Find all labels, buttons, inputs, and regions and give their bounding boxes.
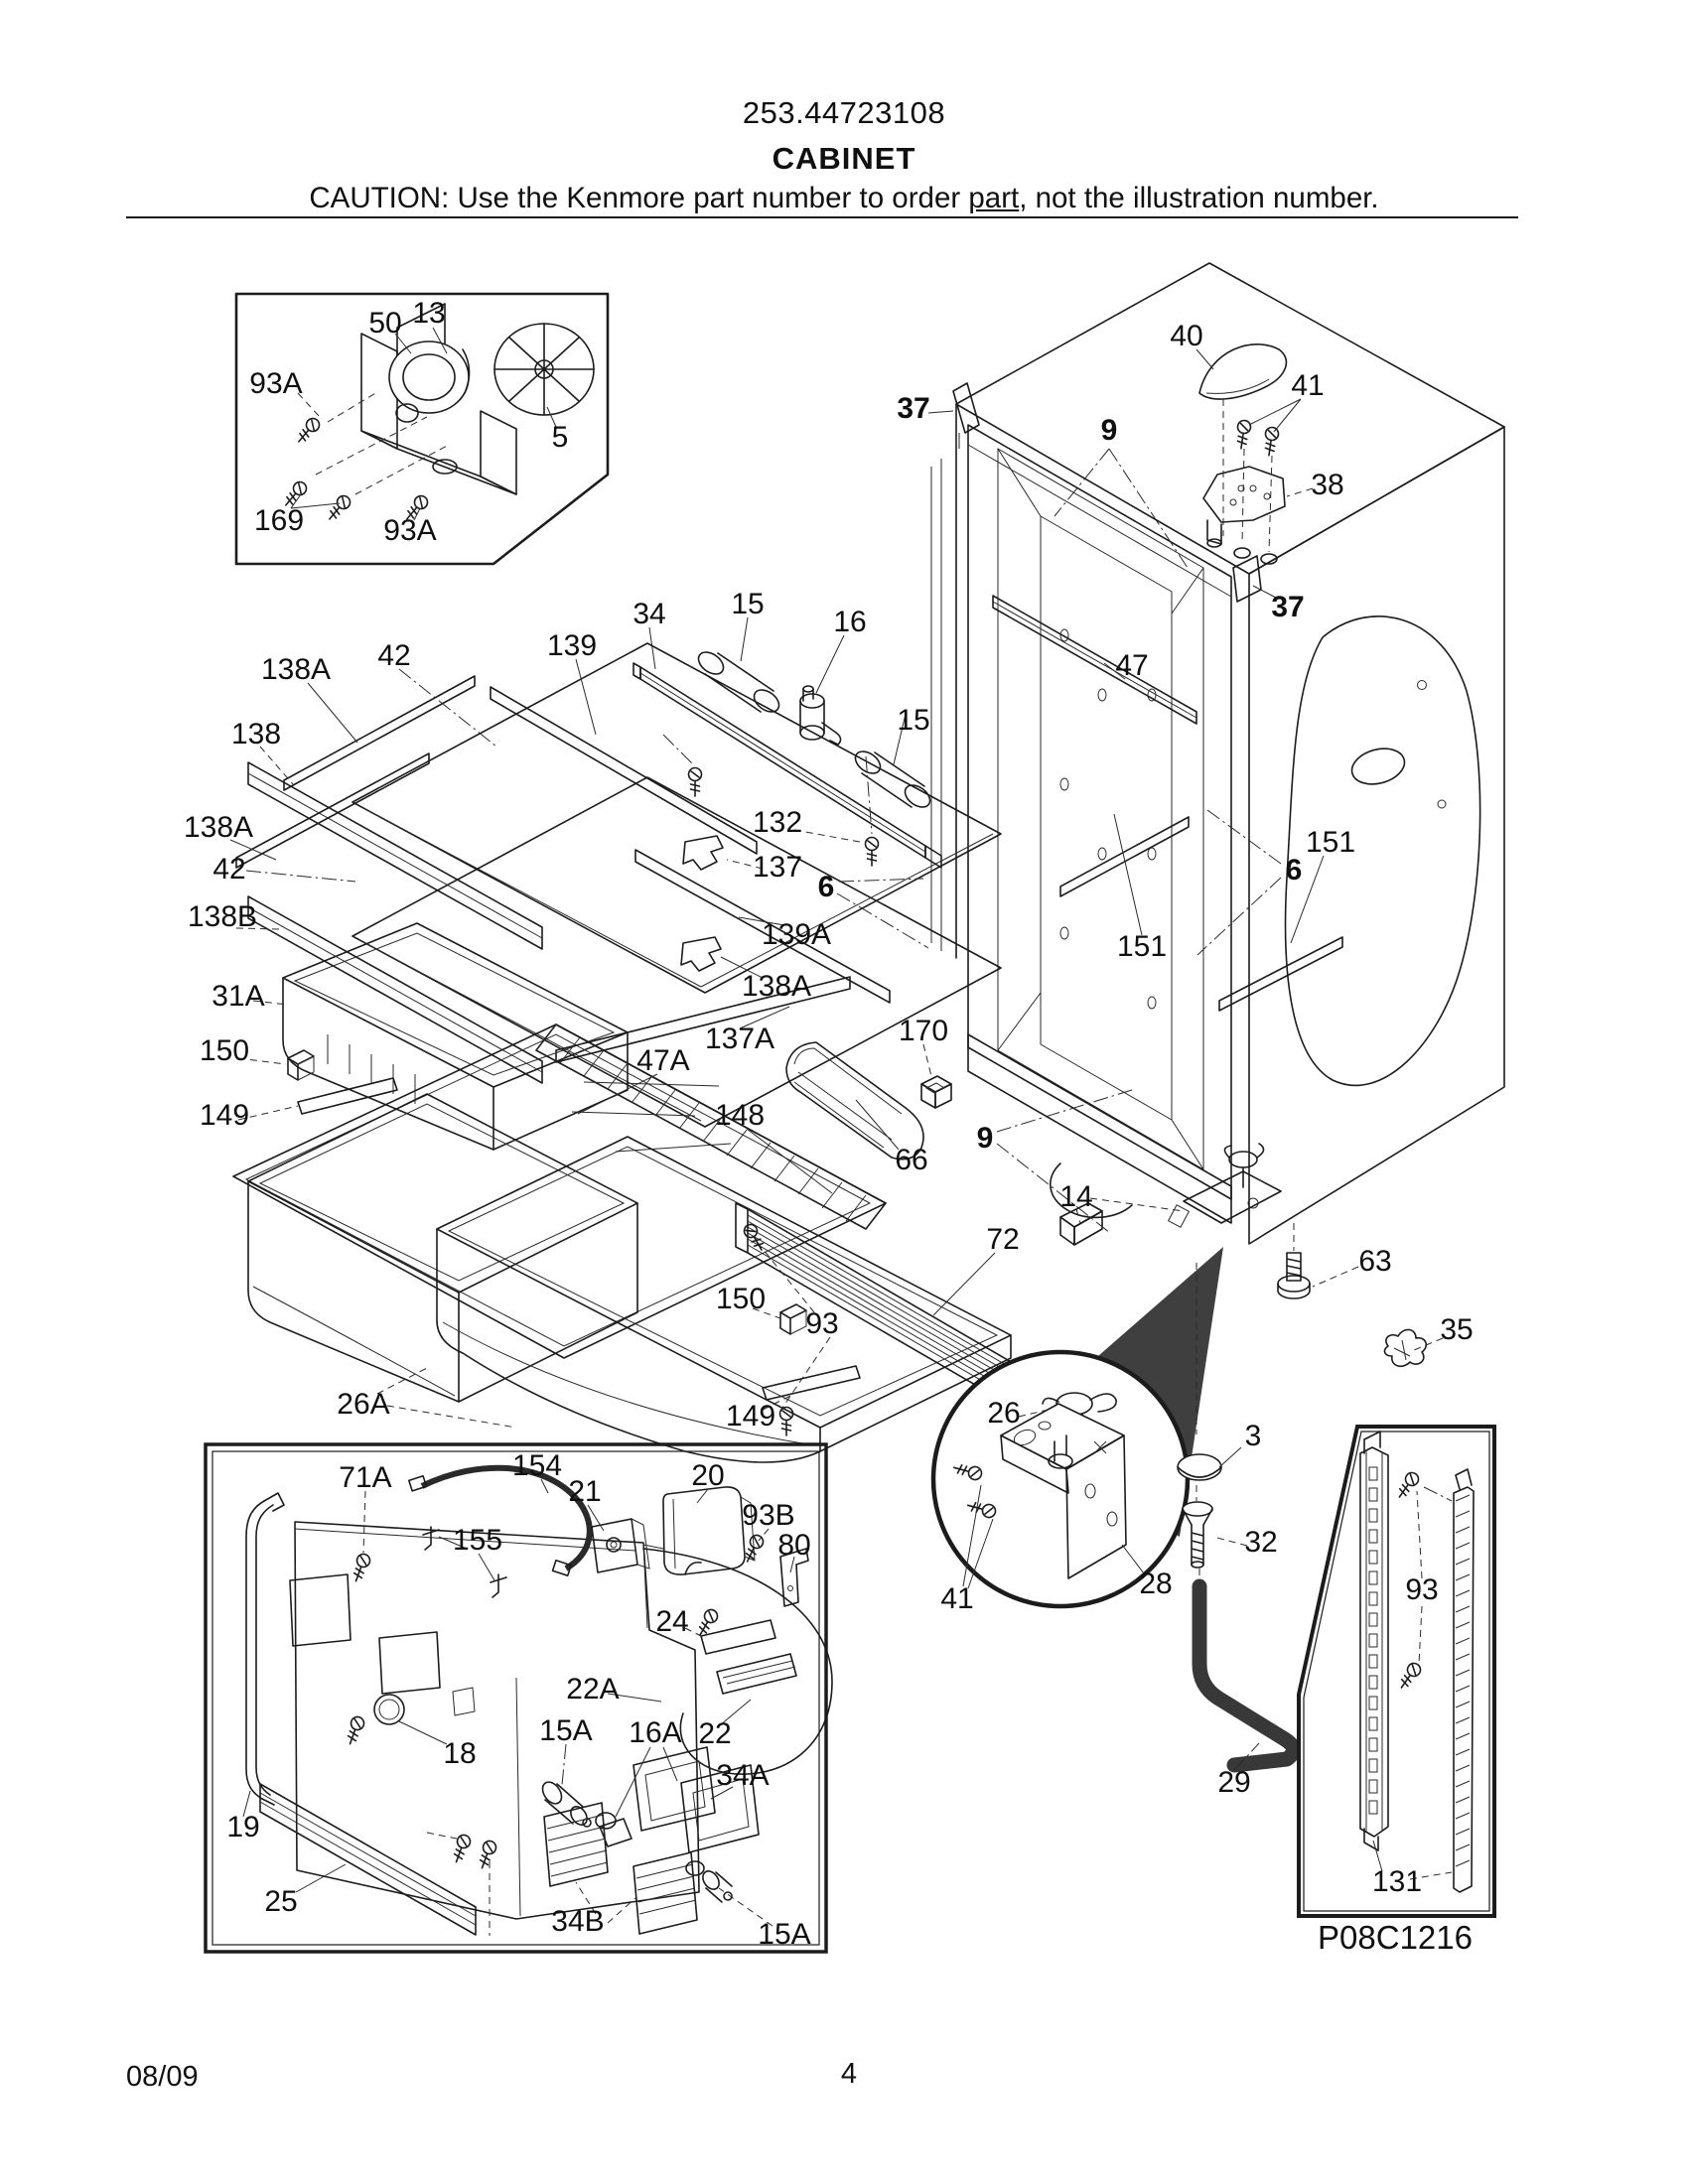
lamp-lens-22: [717, 1654, 796, 1694]
part-label-138A: 138A: [184, 811, 253, 844]
part-label-9: 9: [977, 1122, 994, 1155]
part-label-16A: 16A: [629, 1716, 681, 1749]
part-label-32: 32: [1244, 1526, 1277, 1559]
shelf-rail-151-right: [1219, 937, 1342, 1011]
part-label-131: 131: [1372, 1865, 1422, 1898]
leg-cap-3: [1178, 1454, 1221, 1480]
part-label-3: 3: [1245, 1420, 1262, 1452]
tube-15-lower: [851, 747, 933, 811]
leg-bolt-32: [1183, 1502, 1212, 1568]
shelf-rail-151-inner: [1060, 817, 1189, 896]
part-label-40: 40: [1170, 320, 1202, 352]
socket-16A: [596, 1813, 632, 1846]
door-gasket-19: [246, 1493, 284, 1805]
drawer-31A: [283, 923, 628, 1150]
part-label-34A: 34A: [716, 1759, 769, 1792]
part-label-42: 42: [377, 639, 410, 672]
part-label-15: 15: [731, 588, 764, 620]
part-label-63: 63: [1358, 1245, 1391, 1278]
part-label-28: 28: [1139, 1568, 1172, 1600]
part-label-47A: 47A: [636, 1044, 689, 1077]
part-label-37: 37: [1271, 591, 1304, 623]
lamp-housing: [633, 1747, 715, 1831]
part-label-155: 155: [453, 1524, 502, 1557]
part-label-19: 19: [226, 1811, 259, 1843]
rail-139: [491, 687, 757, 854]
part-label-29: 29: [1217, 1766, 1250, 1799]
part-label-26: 26: [987, 1397, 1020, 1430]
clip-150-left: [288, 1050, 314, 1080]
part-label-41: 41: [940, 1582, 973, 1615]
clip-150-right: [780, 1304, 806, 1334]
shelf-stack: [236, 643, 1001, 1127]
parts-diagram-page: 253.44723108 CABINET CAUTION: Use the Ke…: [0, 0, 1688, 2184]
back-panel-inset: [206, 1444, 832, 1952]
drain-hose-29: [1199, 1586, 1294, 1765]
part-label-15A: 15A: [758, 1918, 810, 1951]
part-label-170: 170: [899, 1015, 948, 1047]
part-label-93: 93: [805, 1307, 838, 1340]
part-label-34: 34: [633, 598, 665, 630]
part-label-25: 25: [264, 1885, 297, 1918]
top-hinge-plate-38: [1203, 467, 1285, 547]
part-label-9: 9: [1101, 414, 1118, 447]
part-label-14: 14: [1059, 1180, 1092, 1213]
part-label-15: 15: [897, 704, 929, 737]
rail-149-left: [298, 1078, 397, 1114]
part-label-13: 13: [412, 297, 445, 330]
corner-trim-37-right: [1233, 556, 1261, 602]
part-label-24: 24: [655, 1605, 688, 1638]
part-label-35: 35: [1440, 1313, 1473, 1346]
part-label-37: 37: [897, 392, 929, 425]
leader-lines: [230, 349, 1452, 1926]
part-label-150: 150: [200, 1034, 249, 1067]
part-label-137: 137: [753, 851, 802, 884]
part-label-21: 21: [568, 1475, 601, 1508]
bumper-170: [921, 1076, 951, 1108]
part-label-139: 139: [547, 629, 597, 662]
part-label-137A: 137A: [705, 1023, 774, 1055]
part-label-148: 148: [715, 1099, 765, 1132]
bulb-15A-1: [539, 1779, 591, 1829]
part-label-93: 93: [1405, 1573, 1438, 1606]
inset-diagram-code: P08C1216: [1276, 1919, 1514, 1957]
exploded-view-drawing: 501393A516993A40413793837341516139138A42…: [0, 0, 1688, 2184]
part-label-6: 6: [1286, 854, 1303, 887]
bracket-137: [683, 836, 723, 870]
part-label-66: 66: [895, 1144, 927, 1176]
part-label-6: 6: [818, 871, 835, 903]
part-label-72: 72: [986, 1223, 1019, 1256]
fan-blade: [494, 324, 594, 415]
thermostat-21: [592, 1519, 663, 1572]
crisper-drawer-1: [248, 1094, 637, 1402]
part-label-71A: 71A: [339, 1461, 391, 1494]
part-label-16: 16: [833, 606, 866, 638]
light-shield-66: [786, 1042, 923, 1160]
part-label-93A: 93A: [249, 367, 302, 400]
footer-page-number: 4: [0, 2058, 1688, 2091]
part-label-5: 5: [552, 421, 569, 454]
flat-rail: [1454, 1469, 1474, 1892]
fan-motor: [389, 341, 470, 422]
rail-138A-back: [284, 676, 475, 790]
part-label-93B: 93B: [742, 1499, 794, 1532]
bottom-hinge: [1184, 1144, 1281, 1223]
part-label-41: 41: [1291, 369, 1324, 402]
part-label-169: 169: [254, 504, 304, 537]
part-label-15A: 15A: [539, 1714, 592, 1747]
slotted-rail-131: [1360, 1432, 1388, 1850]
part-label-151: 151: [1306, 826, 1355, 859]
part-label-151: 151: [1117, 930, 1167, 963]
part-label-20: 20: [691, 1459, 724, 1492]
leveling-bolt-63: [1278, 1223, 1310, 1298]
part-label-150: 150: [716, 1283, 766, 1315]
part-label-138: 138: [231, 718, 281, 751]
part-label-93A: 93A: [383, 514, 436, 547]
part-label-38: 38: [1311, 469, 1343, 501]
top-hinge-cover-40: [1199, 344, 1286, 399]
rail-inset: [1299, 1427, 1494, 1916]
shelf-rail-47: [993, 596, 1196, 724]
part-label-22A: 22A: [566, 1673, 619, 1706]
part-label-42: 42: [212, 853, 245, 886]
wire-harness-154: [409, 1468, 590, 1575]
part-labels-layer: 501393A516993A40413793837341516139138A42…: [184, 297, 1474, 1951]
part-label-132: 132: [753, 806, 802, 839]
part-label-138A: 138A: [261, 653, 331, 686]
part-label-138A: 138A: [742, 970, 811, 1003]
part-label-138B: 138B: [188, 900, 257, 933]
bracket-138A: [681, 937, 721, 971]
part-label-18: 18: [443, 1737, 476, 1770]
part-label-149: 149: [200, 1099, 249, 1132]
part-label-139A: 139A: [762, 918, 831, 951]
part-label-154: 154: [512, 1449, 562, 1482]
part-label-149: 149: [726, 1400, 775, 1433]
part-label-80: 80: [777, 1529, 810, 1562]
part-label-47: 47: [1115, 649, 1148, 682]
lamp-plate-24: [694, 1607, 775, 1654]
part-label-22: 22: [698, 1717, 731, 1750]
tube-15-upper: [694, 647, 782, 716]
cabinet-bottom-band: [968, 1034, 1231, 1227]
part-label-50: 50: [368, 307, 401, 340]
part-label-34B: 34B: [551, 1905, 604, 1938]
part-label-31A: 31A: [211, 980, 264, 1013]
part-label-26A: 26A: [337, 1388, 389, 1421]
